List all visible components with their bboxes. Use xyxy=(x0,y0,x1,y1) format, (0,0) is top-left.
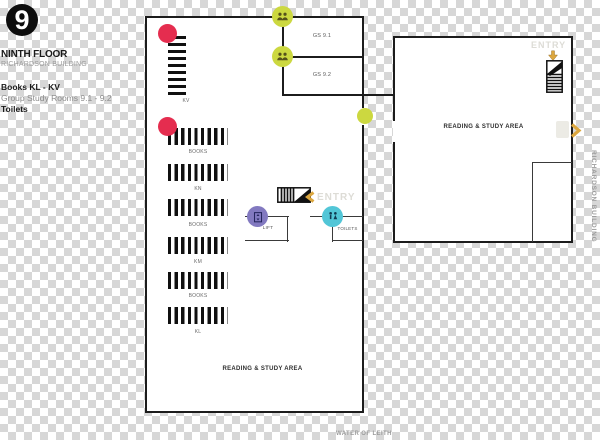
shelf-label-6: KL xyxy=(168,329,228,335)
wall-group-study-bottom-bridge xyxy=(282,94,394,96)
wall-left-building-left xyxy=(145,16,147,413)
wall-toilets-bottom xyxy=(332,240,363,241)
shelf-label-1: BOOKS xyxy=(168,149,228,155)
building-subtitle: RICHARDSON BUILDING xyxy=(1,61,87,68)
wall-lift-right xyxy=(287,216,288,242)
floor-number: 9 xyxy=(14,7,29,34)
exit-arrow-right-icon xyxy=(569,122,582,139)
people-icon xyxy=(275,49,290,64)
wall-right-room-top xyxy=(532,162,572,163)
lift-icon xyxy=(251,210,265,224)
floor-number-badge: 9 xyxy=(6,4,38,36)
toilets-marker xyxy=(322,206,343,227)
shelf-label-3: BOOKS xyxy=(168,222,228,228)
wall-left-building-top xyxy=(145,16,364,18)
bookshelf-row-4 xyxy=(168,237,228,254)
wall-right-building-left-lower xyxy=(393,142,395,243)
bookshelf-row-6 xyxy=(168,307,228,324)
book-section-marker-kl xyxy=(158,117,177,136)
bridge-marker xyxy=(357,108,373,124)
group-study-room-1-label: GS 9.1 xyxy=(292,33,352,39)
water-of-leith-caption: WATER OF LEITH xyxy=(336,431,392,437)
entry-arrow-left-icon xyxy=(304,191,316,203)
group-study-marker-1 xyxy=(272,6,293,27)
reading-area-label-left: READING & STUDY AREA xyxy=(200,366,325,372)
wall-right-building-top xyxy=(393,36,573,38)
wall-right-building-right xyxy=(571,36,573,243)
reading-area-label-right: READING & STUDY AREA xyxy=(420,124,547,130)
lift-marker xyxy=(247,206,268,227)
wall-group-study-divider xyxy=(282,56,364,58)
wall-right-room-left xyxy=(532,162,533,242)
group-study-room-2-label: GS 9.2 xyxy=(292,72,352,78)
side-building-caption: RICHARDSON BUILDING xyxy=(590,150,597,280)
shelf-label-kv: KV xyxy=(168,98,204,104)
shelf-label-5: BOOKS xyxy=(168,293,228,299)
people-icon xyxy=(275,9,290,24)
group-study-marker-2 xyxy=(272,46,293,67)
floor-plan-canvas: 9 NINTH FLOOR RICHARDSON BUILDING Books … xyxy=(0,0,600,440)
stairs-icon-top-right xyxy=(546,60,563,93)
wall-left-building-right-lower xyxy=(362,125,364,413)
shelf-label-2: KN xyxy=(168,186,228,192)
bookshelf-row-2 xyxy=(168,164,228,181)
bookshelf-row-3 xyxy=(168,199,228,216)
wall-lift-bottom xyxy=(245,240,289,241)
book-section-marker-kv xyxy=(158,24,177,43)
wall-right-building-left-upper xyxy=(393,36,395,121)
bookshelf-row-1 xyxy=(168,128,228,145)
legend-item-group-study: Group Study Rooms 9.1 - 9.2 xyxy=(1,93,112,103)
toilets-room-label: TOILETS xyxy=(332,226,363,231)
floor-title: NINTH FLOOR xyxy=(1,49,67,60)
shelf-label-4: KM xyxy=(168,259,228,265)
wall-right-building-bottom xyxy=(393,241,573,243)
entry-label-top: ENTRY xyxy=(531,40,566,50)
wall-left-building-bottom xyxy=(145,411,364,413)
door-blob xyxy=(556,121,569,138)
legend-item-toilets: Toilets xyxy=(1,104,28,114)
bookshelf-row-5 xyxy=(168,272,228,289)
wc-icon xyxy=(326,210,340,224)
legend-item-books: Books KL - KV xyxy=(1,82,60,92)
entry-label-middle: ENTRY xyxy=(317,192,356,203)
